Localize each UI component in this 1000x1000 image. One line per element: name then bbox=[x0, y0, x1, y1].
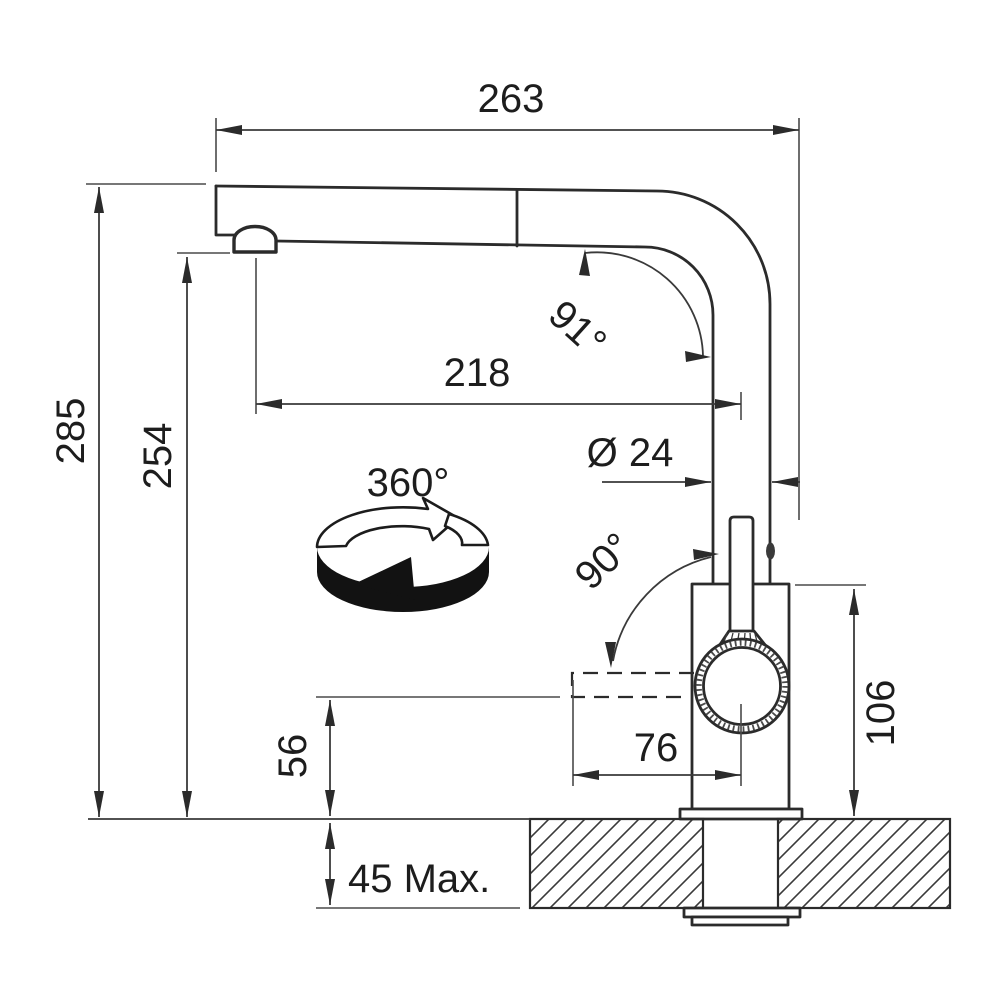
dimension-spout-angle: 91° bbox=[540, 249, 711, 365]
body-height-label: 106 bbox=[859, 680, 903, 747]
handle-phantom-outline bbox=[572, 673, 694, 697]
base-plate bbox=[680, 809, 802, 819]
aerator bbox=[234, 227, 276, 252]
handle-ball-inner bbox=[704, 648, 781, 725]
dimension-handle-clearance: 56 bbox=[271, 697, 560, 816]
overall-height-label: 285 bbox=[49, 398, 93, 465]
overall-width-label: 263 bbox=[478, 77, 545, 121]
handle-reach-label: 76 bbox=[634, 726, 679, 770]
dimension-spout-reach: 218 bbox=[256, 258, 741, 420]
swivel-band-right bbox=[445, 514, 488, 545]
dimension-spout-height: 254 bbox=[136, 253, 230, 817]
spout-angle-label: 91° bbox=[540, 292, 614, 365]
spout-reach-label: 218 bbox=[444, 351, 511, 395]
dimension-overall-height: 285 bbox=[49, 184, 206, 817]
mounting-nut bbox=[692, 917, 788, 925]
handle-clearance-label: 56 bbox=[271, 734, 315, 779]
swivel-band-top bbox=[317, 498, 458, 547]
swivel-rotation-icon: 360° bbox=[317, 461, 489, 612]
countertop-left bbox=[530, 819, 703, 908]
deck-thickness-label: 45 Max. bbox=[348, 857, 490, 901]
swivel-range-label: 360° bbox=[367, 461, 450, 505]
dimension-spout-diameter: Ø 24 bbox=[587, 431, 800, 482]
faucet-diagram-svg: 263 285 254 218 91° Ø 24 360° bbox=[0, 0, 1000, 1000]
stem-clip bbox=[766, 543, 775, 560]
spout-height-label: 254 bbox=[136, 423, 180, 490]
dimension-deck-thickness: 45 Max. bbox=[316, 823, 520, 908]
handle-stem bbox=[730, 517, 753, 632]
spout-diameter-label: Ø 24 bbox=[587, 431, 674, 475]
countertop-right bbox=[778, 819, 950, 908]
faucet-dimension-drawing: 263 285 254 218 91° Ø 24 360° bbox=[0, 0, 1000, 1000]
handle-angle-label: 90° bbox=[567, 525, 641, 599]
dimension-body-height: 106 bbox=[795, 585, 903, 816]
